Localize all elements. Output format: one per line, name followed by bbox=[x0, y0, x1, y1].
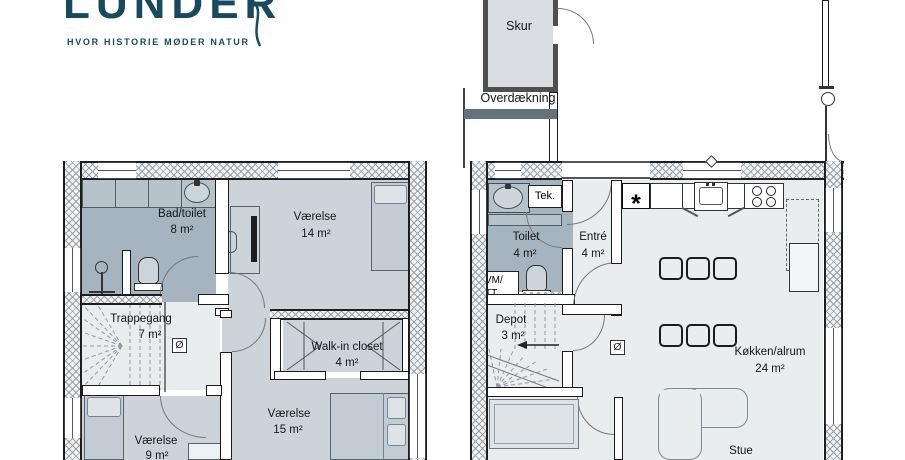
room-area-toilet: 4 m² bbox=[514, 248, 537, 260]
dining-chair bbox=[659, 257, 683, 280]
overdaekning-edge bbox=[463, 88, 465, 168]
window bbox=[825, 328, 842, 424]
stove-burner-icon bbox=[766, 197, 776, 207]
stove-burner-icon bbox=[766, 186, 776, 196]
room-label-entre: Entré bbox=[579, 231, 607, 243]
window bbox=[825, 188, 842, 232]
stove-burner-icon bbox=[752, 186, 762, 196]
wall bbox=[611, 180, 622, 264]
tall-cabinet bbox=[789, 243, 819, 292]
toilet-icon bbox=[526, 265, 547, 292]
faucet-icon bbox=[712, 183, 715, 186]
window bbox=[495, 162, 521, 179]
bed-inner bbox=[494, 404, 574, 444]
sofa-join bbox=[660, 390, 700, 426]
room-label-depot: Depot bbox=[496, 314, 527, 326]
counter-divider bbox=[744, 184, 745, 208]
room-label-overdaekning: Overdækning bbox=[480, 91, 555, 105]
dining-chair bbox=[713, 324, 737, 347]
wall-line bbox=[825, 106, 827, 164]
wall bbox=[614, 397, 623, 460]
exterior-wall bbox=[650, 161, 844, 180]
floorplan-canvas: LUNDER HVOR HISTORIE MØDER NATUR bbox=[0, 0, 905, 460]
dining-chair bbox=[686, 324, 710, 347]
wall-end bbox=[819, 86, 834, 89]
floor-drain-symbol: Ø bbox=[610, 340, 625, 355]
faucet-icon bbox=[706, 183, 709, 186]
room-area-entre: 4 m² bbox=[582, 248, 605, 260]
counter-divider bbox=[682, 184, 683, 208]
door-arc bbox=[558, 8, 594, 44]
wall bbox=[822, 0, 829, 88]
tek-box: Tek. bbox=[528, 185, 562, 208]
room-label-stue: Stue bbox=[729, 445, 753, 457]
faucet-icon bbox=[505, 184, 511, 189]
downpipe-icon bbox=[821, 92, 835, 106]
stove-burner-icon bbox=[752, 197, 762, 207]
room-label-skur: Skur bbox=[506, 19, 532, 33]
sink-icon bbox=[493, 186, 523, 209]
wall bbox=[562, 304, 622, 315]
overdaekning-beam bbox=[464, 109, 557, 119]
porch-edge bbox=[562, 161, 650, 163]
room-skur bbox=[483, 0, 558, 92]
kitchen-sink-icon bbox=[699, 187, 723, 205]
wall bbox=[483, 387, 583, 397]
room-label-toilet: Toilet bbox=[513, 231, 540, 243]
room-area-koekken-alrum: 24 m² bbox=[755, 363, 784, 375]
room-area-depot: 3 m² bbox=[502, 330, 525, 342]
door-arc bbox=[828, 134, 844, 162]
floor-plan-ground: Tek. VM/ TT * bbox=[0, 0, 905, 460]
room-label-koekken-alrum: Køkken/alrum bbox=[735, 346, 806, 358]
dining-chair bbox=[686, 257, 710, 280]
dining-chair bbox=[659, 324, 683, 347]
vm-label: VM/ bbox=[485, 274, 518, 287]
dining-chair bbox=[713, 257, 737, 280]
star-symbol-box: * bbox=[622, 183, 650, 209]
porch-edge bbox=[562, 177, 650, 179]
window bbox=[471, 190, 487, 234]
